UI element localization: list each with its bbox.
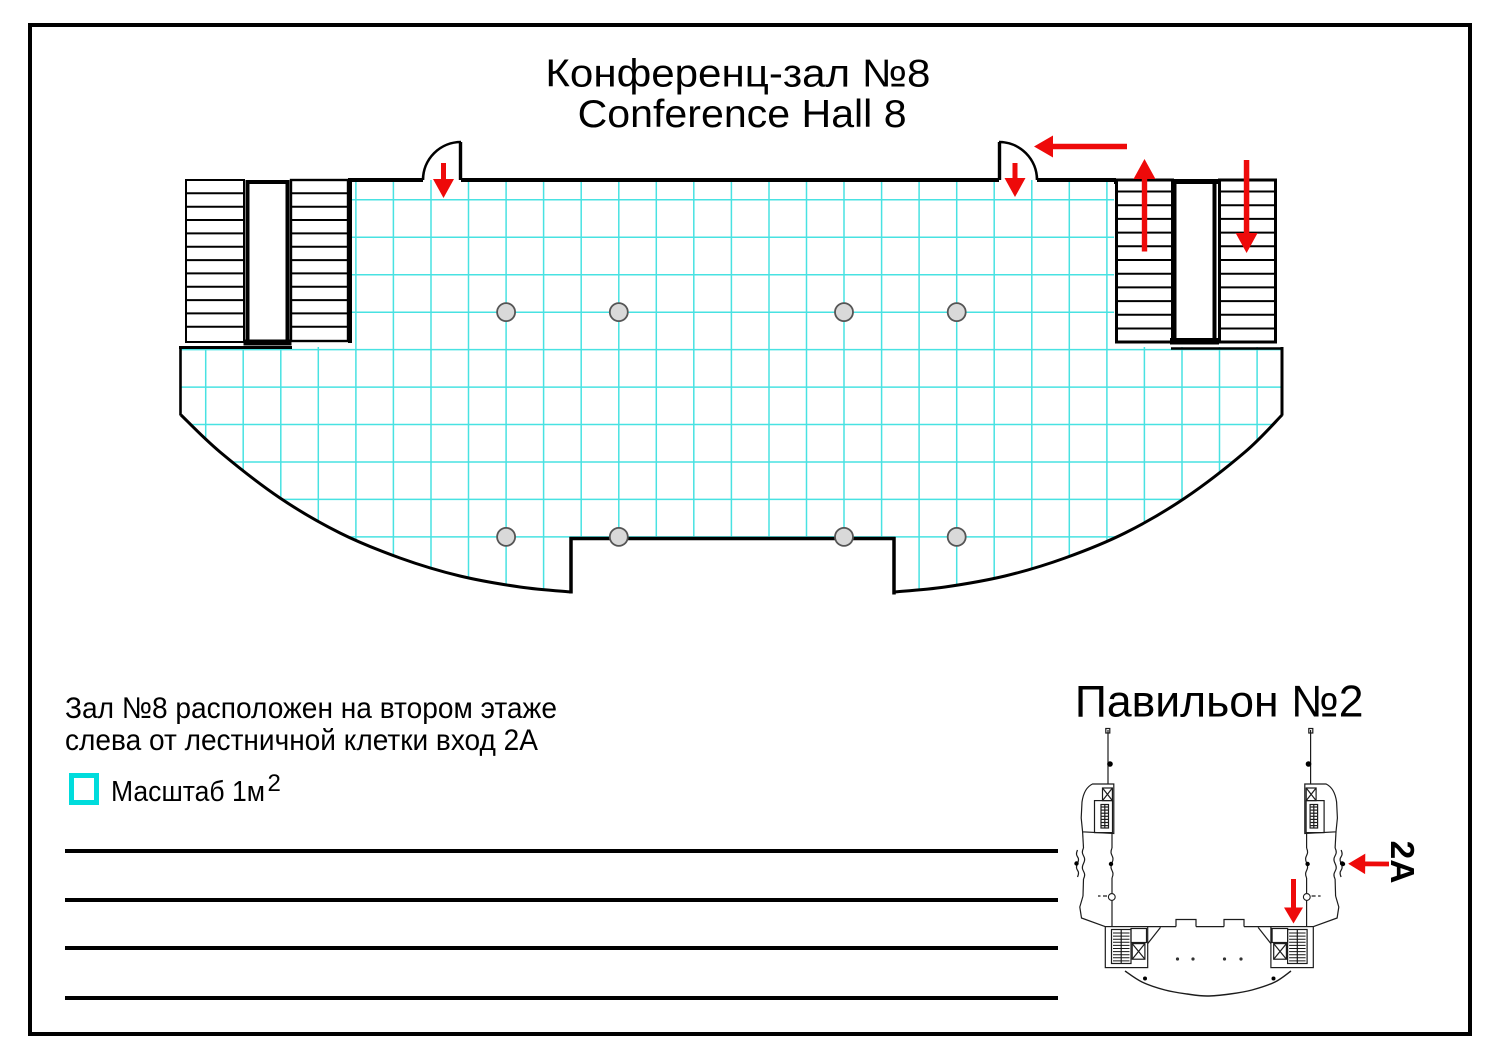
svg-text:Павильон №2: Павильон №2 [1075,678,1364,727]
svg-text:Конференц-зал №8: Конференц-зал №8 [545,53,930,96]
svg-text:Conference Hall 8: Conference Hall 8 [578,93,907,136]
svg-text:Зал №8 расположен на втором эт: Зал №8 расположен на втором этаже [65,692,557,725]
svg-text:2А: 2А [1383,841,1420,884]
svg-text:слева от лестничной клетки вхо: слева от лестничной клетки вход 2А [65,724,538,757]
svg-text:Масштаб 1м: Масштаб 1м [111,776,265,808]
svg-text:2: 2 [268,770,281,797]
